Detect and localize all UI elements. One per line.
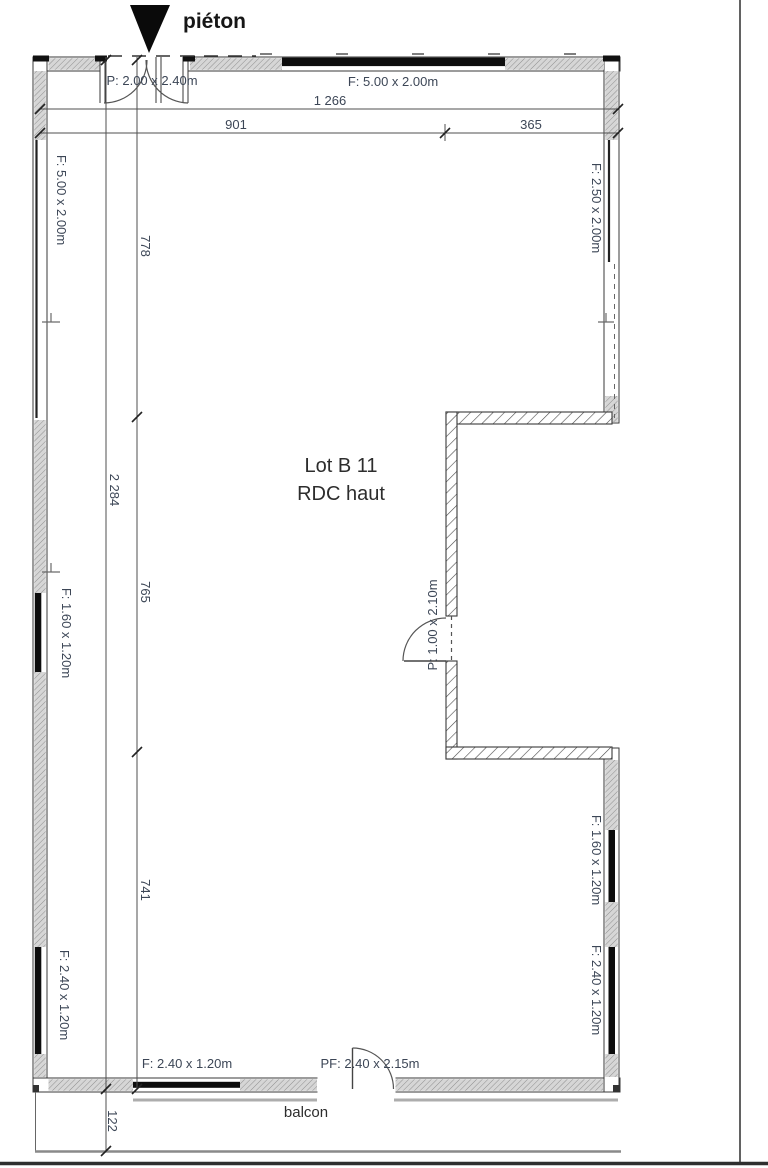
notch-wall-bottom xyxy=(446,747,612,759)
notch-wall-vertical-upper xyxy=(446,412,457,616)
balcony-label: balcon xyxy=(284,1104,328,1121)
window-right-middle-glazing xyxy=(609,830,616,902)
dim-balcony-depth-label: 122 xyxy=(105,1110,120,1132)
corner-cap xyxy=(603,56,620,62)
wall-hatch-segment xyxy=(34,420,46,593)
wall-hatch-segment xyxy=(49,1079,134,1091)
balcony-door-label: PF: 2.40 x 2.15m xyxy=(321,1056,420,1071)
window-left-lower-label: F: 2.40 x 1.20m xyxy=(57,950,72,1040)
window-right-lower-label: F: 2.40 x 1.20m xyxy=(589,945,604,1035)
floor-plan-svg: piéton Lot B 11 RDC haut balcon P: 2.00 … xyxy=(0,0,768,1168)
notch-walls xyxy=(446,412,612,759)
wall-hatch-segment xyxy=(395,1079,603,1091)
wall-hatch-segments xyxy=(34,58,618,1091)
wall-hatch-segment xyxy=(34,1054,46,1077)
window-bottom-glazing xyxy=(133,1082,240,1088)
pedestrian-arrow-icon xyxy=(130,5,170,53)
corner-cap xyxy=(33,56,49,62)
notch-wall-vertical-lower xyxy=(446,661,457,759)
pedestrian-label: piéton xyxy=(183,10,246,33)
balcony-door-opening xyxy=(318,1077,396,1093)
window-right-upper-label: F: 2.50 x 2.00m xyxy=(589,163,604,253)
wall-hatch-segment xyxy=(34,672,46,947)
window-top-label: F: 5.00 x 2.00m xyxy=(348,74,438,89)
window-right-lower-glazing xyxy=(609,947,616,1054)
window-top-glazing xyxy=(282,58,505,67)
wall-hatch-segment xyxy=(605,902,618,947)
wall-hatch-segment xyxy=(240,1079,317,1091)
window-right-middle-label: F: 1.60 x 1.20m xyxy=(589,815,604,905)
notch-wall-top xyxy=(446,412,612,424)
dim-height-top-label: 778 xyxy=(138,235,153,257)
balcony-outline xyxy=(35,1092,621,1152)
wall-hatch-segment xyxy=(49,58,100,70)
interior-door-label: P: 1.00 x 2.10m xyxy=(425,579,440,670)
unit-title: Lot B 11 xyxy=(304,455,377,477)
dimension-ticks xyxy=(35,55,623,1156)
wall-corner-caps xyxy=(33,56,620,1093)
window-left-middle-label: F: 1.60 x 1.20m xyxy=(59,588,74,678)
dim-height-bottom-label: 741 xyxy=(138,879,153,901)
wall-hatch-segment xyxy=(605,1054,618,1077)
dim-total-height-label: 2 284 xyxy=(107,474,122,507)
window-left-middle-glazing xyxy=(35,593,42,672)
dim-width-left-label: 901 xyxy=(225,117,247,132)
window-left-lower-glazing xyxy=(35,947,42,1054)
entrance-door-opening xyxy=(100,56,189,72)
corner-cap xyxy=(613,1085,620,1092)
wall-hatch-segment xyxy=(190,58,282,70)
dimension-lines xyxy=(40,57,618,1151)
window-glazing xyxy=(35,58,615,1088)
exterior-walls xyxy=(33,57,620,1092)
window-marks xyxy=(42,313,614,572)
window-bottom-label: F: 2.40 x 1.20m xyxy=(142,1056,232,1071)
dim-total-width-label: 1 266 xyxy=(314,93,347,108)
wall-hatch-segment xyxy=(505,58,604,70)
entrance-door-label: P: 2.00 x 2.40m xyxy=(106,73,197,88)
wall-hatch-segment xyxy=(605,760,618,830)
wall-hatch-segment xyxy=(605,71,618,140)
dim-height-middle-label: 765 xyxy=(138,581,153,603)
window-left-upper-label: F: 5.00 x 2.00m xyxy=(54,155,69,245)
page-border xyxy=(0,0,768,1164)
dim-width-right-label: 365 xyxy=(520,117,542,132)
unit-subtitle: RDC haut xyxy=(297,483,385,505)
floor-plan-page: piéton Lot B 11 RDC haut balcon P: 2.00 … xyxy=(0,0,768,1168)
corner-cap xyxy=(33,1085,39,1092)
